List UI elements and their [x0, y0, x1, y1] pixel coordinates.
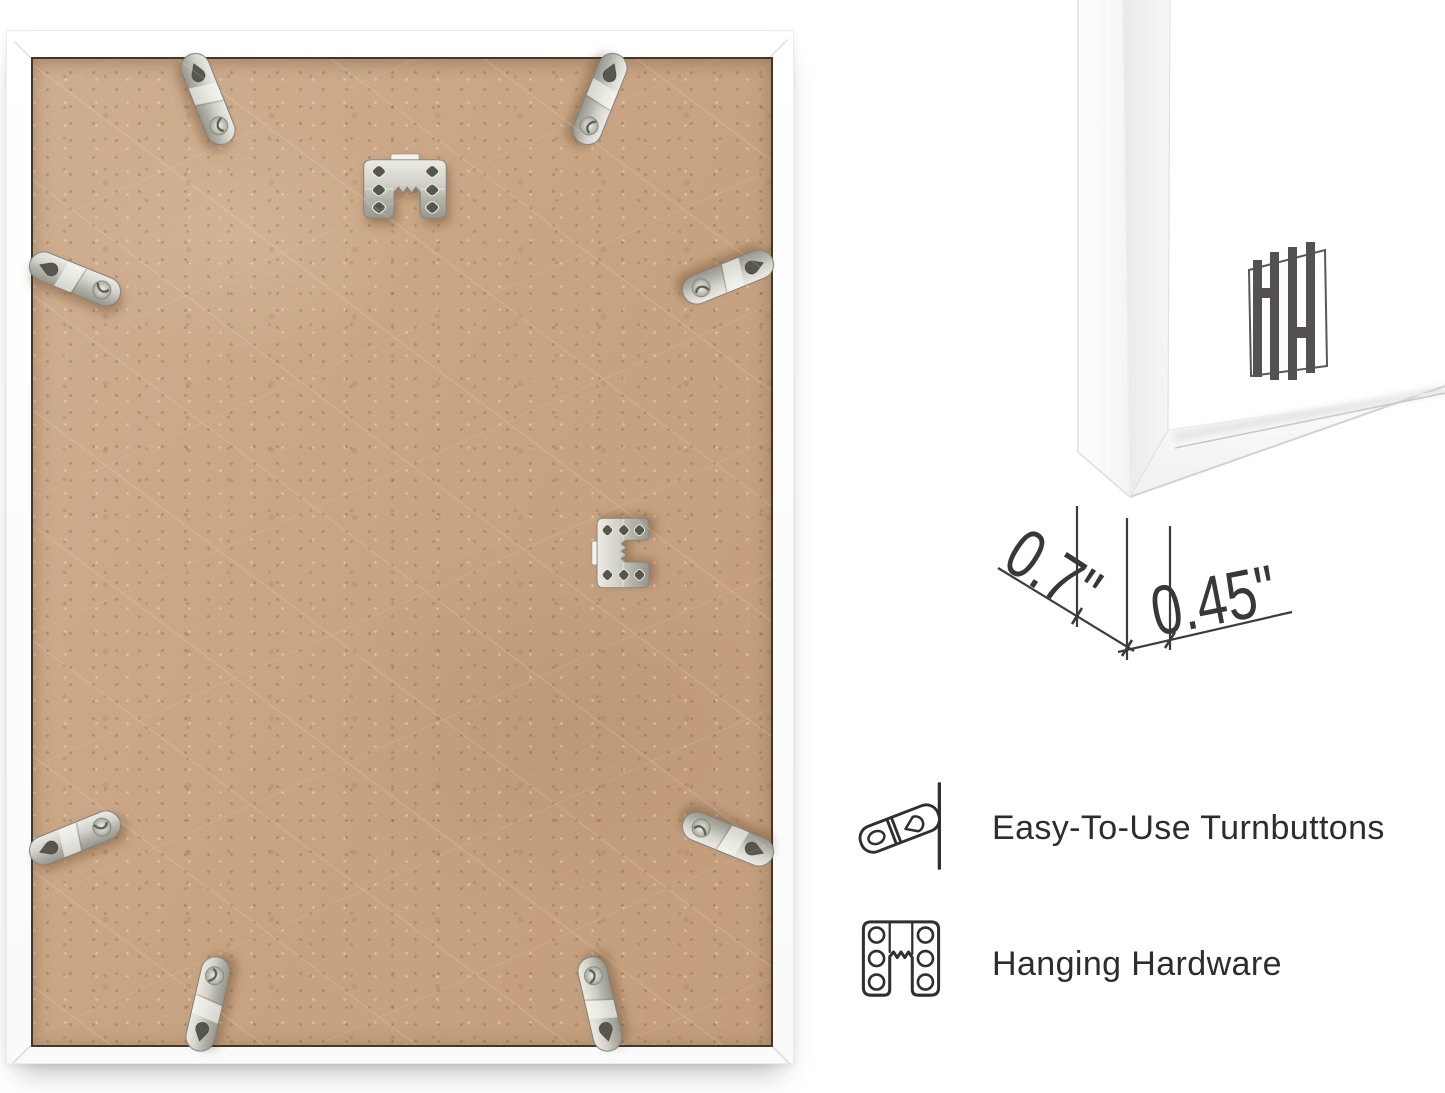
turnbutton-hardware	[22, 245, 127, 314]
feature-label-turnbuttons: Easy-To-Use Turnbuttons	[992, 809, 1385, 848]
frame-side-face	[1078, 0, 1130, 497]
dimension-label-face-width: 0.45"	[1144, 551, 1282, 652]
product-infographic: 0.7" 0.45" Easy-To-Use Turnbuttons Hangi…	[0, 0, 1445, 1093]
dimension-label-depth: 0.7"	[992, 514, 1114, 631]
feature-label-hanging-hardware: Hanging Hardware	[992, 945, 1282, 984]
turnbutton-hardware	[180, 951, 236, 1056]
frame-corner-render: 0.7" 0.45"	[960, 0, 1445, 700]
frame-front-face	[1123, 0, 1170, 497]
mdf-backing-board	[31, 57, 773, 1047]
turnbutton-hardware	[174, 46, 243, 151]
sawtooth-hanger-hardware	[591, 511, 655, 595]
turnbutton-hardware	[572, 951, 628, 1056]
turnbutton-hardware	[22, 804, 127, 873]
turnbutton-hardware	[675, 243, 780, 312]
frame-back-photo	[6, 30, 794, 1064]
turnbutton-hardware	[675, 805, 780, 874]
sawtooth-hanger-hardware	[355, 153, 455, 225]
turnbutton-metal	[174, 46, 243, 151]
turnbutton-icon	[852, 778, 948, 874]
hanging-hardware-icon	[854, 914, 948, 1004]
turnbutton-hardware	[566, 46, 635, 151]
